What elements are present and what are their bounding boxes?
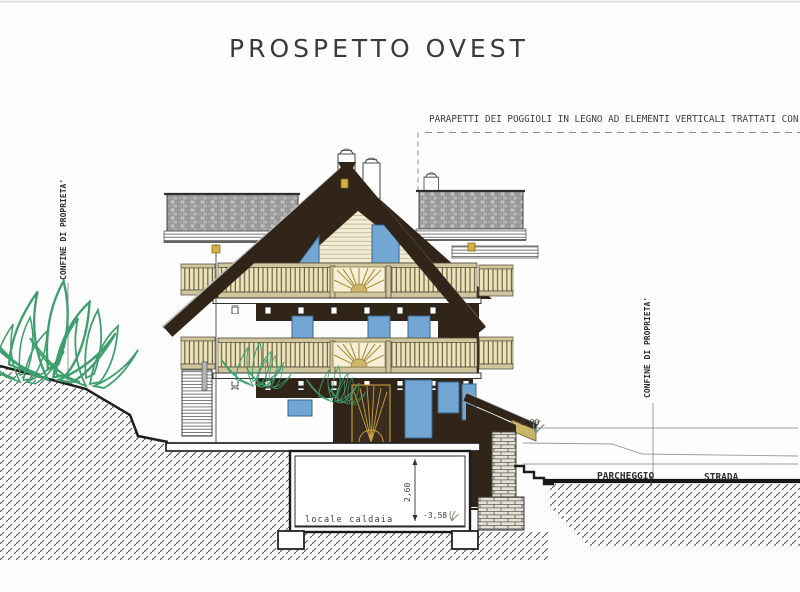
stone-pillar [492,432,516,507]
eave-fascia-right-low [452,246,538,258]
annotation-text: PARAPETTI DEI POGGIOLI IN LEGNO AD ELEME… [429,114,798,125]
side-balcony-right-lower [479,337,513,369]
terrain-contours [523,428,798,464]
property-label-left: CONFINE DI PROPRIETA' [59,179,68,280]
basement-height-dimension: 2,60 [403,483,412,502]
ground-level: 0,00 [520,418,539,427]
foundation-masonry-block [478,497,524,530]
bush-large [0,281,116,382]
road-label: STRADA [704,472,739,483]
elevation-drawing: PROSPETTO OVEST PARAPETTI DEI POGGIOLI I… [0,0,800,592]
second-balcony-railing [213,338,481,379]
annotation-leader [418,133,800,192]
hatch-roadside [548,483,800,548]
basement-level: -3,58 [423,511,447,520]
hatch-retaining [168,446,290,532]
ground-window [438,382,459,413]
eave-fascia-right [416,229,526,240]
gold-light-right [468,243,475,251]
footing-right [452,531,478,549]
exterior-stair-side [182,370,212,436]
footing-left [278,531,304,549]
balcony-slab-attic [213,298,481,304]
boundary-post [202,362,207,390]
boiler-room-label: locale caldaia [305,515,393,525]
hatch-under-basement [168,532,548,560]
side-balcony-left-lower [181,337,215,369]
blueprint-page: PROSPETTO OVEST PARAPETTI DEI POGGIOLI I… [0,0,800,592]
sunburst-panel-attic [333,267,385,292]
sunburst-panel-second [333,342,385,367]
page-title: PROSPETTO OVEST [229,34,529,63]
parking-label: PARCHEGGIO [597,471,654,482]
ground-slab [166,443,480,451]
hatch-left-slope [0,366,168,560]
joist-ends-1 [222,305,472,314]
gold-light-left [212,245,220,253]
side-balcony-right-upper [479,265,513,296]
property-label-right: CONFINE DI PROPRIETA' [643,297,652,398]
gold-light-ridge [341,179,348,188]
ground-door [405,380,432,438]
basement-window [288,400,312,416]
foundation-dark-sliver [470,451,478,497]
